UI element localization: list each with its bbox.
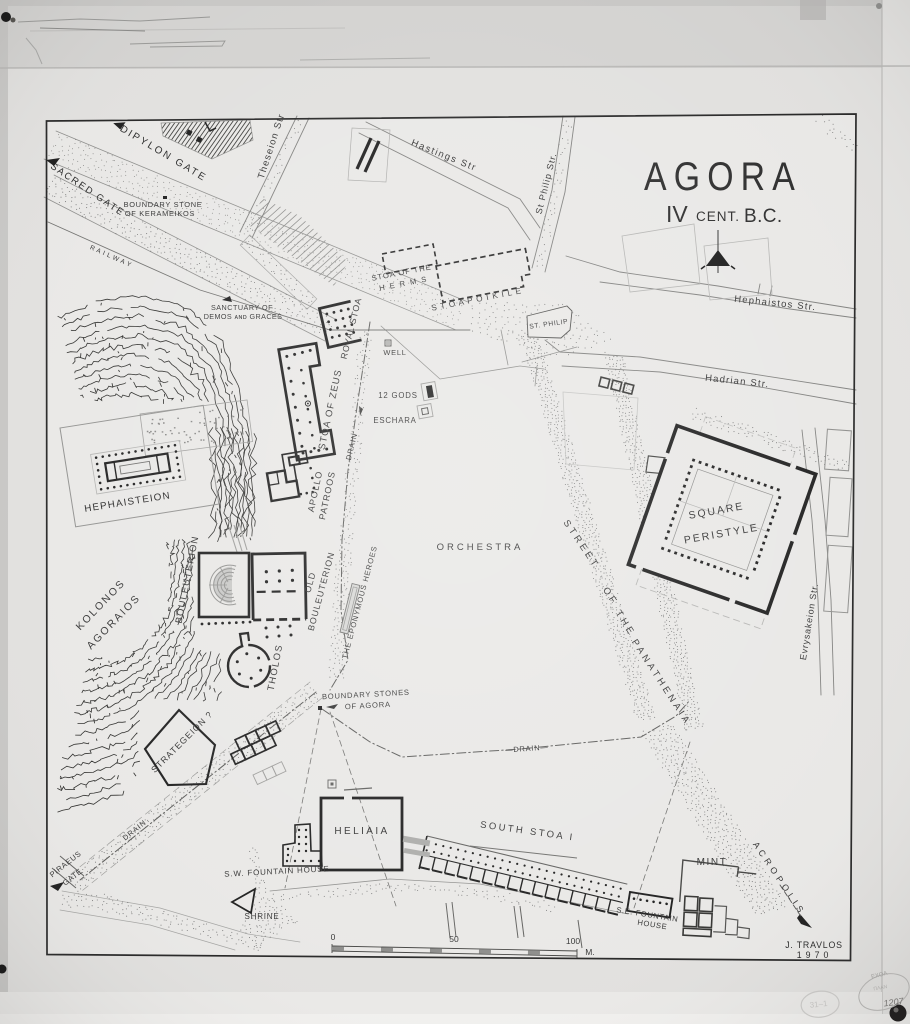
svg-text:MINT: MINT [697, 857, 728, 868]
svg-text:SHRINE: SHRINE [244, 912, 279, 921]
svg-text:BOUNDARY STONE: BOUNDARY STONE [124, 200, 203, 209]
svg-text:J. TRAVLOS: J. TRAVLOS [785, 940, 843, 950]
svg-text:AGORA: AGORA [644, 155, 802, 199]
svg-text:0: 0 [331, 932, 336, 942]
svg-text:31–1: 31–1 [809, 999, 828, 1010]
svg-text:OF KERAMEIKOS: OF KERAMEIKOS [125, 209, 195, 218]
svg-text:ESCHARA: ESCHARA [373, 416, 416, 425]
svg-text:1 9 7 0: 1 9 7 0 [797, 950, 830, 960]
svg-text:12 GODS: 12 GODS [378, 391, 417, 400]
svg-text:B.C.: B.C. [744, 206, 783, 227]
svg-text:CENT.: CENT. [696, 209, 740, 224]
svg-text:WELL: WELL [383, 348, 406, 357]
svg-text:100: 100 [566, 936, 580, 946]
svg-text:50: 50 [449, 934, 459, 944]
svg-text:ORCHESTRA: ORCHESTRA [437, 542, 524, 553]
svg-text:DEMOS ᴀɴᴅ GRACES: DEMOS ᴀɴᴅ GRACES [204, 312, 283, 321]
svg-text:SANCTUARY OF: SANCTUARY OF [211, 303, 273, 312]
svg-text:M.: M. [585, 947, 594, 957]
svg-text:HELIAIA: HELIAIA [334, 826, 389, 837]
svg-text:IV: IV [666, 201, 688, 227]
